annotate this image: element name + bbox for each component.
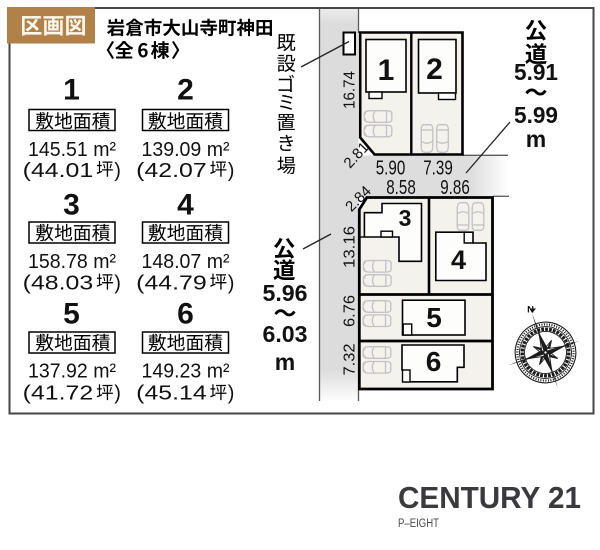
svg-text:(44.79: (44.79 <box>136 273 207 295</box>
svg-text:(44.01: (44.01 <box>23 160 94 182</box>
svg-text:8.58: 8.58 <box>386 177 416 199</box>
svg-text:): ) <box>228 273 235 295</box>
svg-text:): ) <box>114 273 121 295</box>
svg-text:(42.07: (42.07 <box>136 160 207 182</box>
svg-text:5.91: 5.91 <box>514 59 558 85</box>
svg-text:(41.72: (41.72 <box>23 383 94 405</box>
svg-text:1: 1 <box>63 74 80 107</box>
svg-text:158.78 m²: 158.78 m² <box>28 251 116 273</box>
svg-text:6.03: 6.03 <box>263 321 308 347</box>
svg-text:): ) <box>228 160 235 182</box>
svg-text:): ) <box>114 383 121 405</box>
svg-text:7.32: 7.32 <box>342 343 359 375</box>
svg-text:3: 3 <box>399 205 412 231</box>
svg-text:6: 6 <box>177 298 194 331</box>
svg-text:CENTURY 21: CENTURY 21 <box>398 480 581 515</box>
svg-text:): ) <box>114 160 121 182</box>
svg-text:5: 5 <box>63 298 80 331</box>
svg-text:6: 6 <box>426 346 442 377</box>
svg-text:5.99: 5.99 <box>514 102 558 128</box>
svg-text:2: 2 <box>177 74 194 107</box>
svg-text:9.86: 9.86 <box>440 177 470 199</box>
svg-text:(45.14: (45.14 <box>136 383 207 405</box>
svg-text:145.51 m²: 145.51 m² <box>28 139 116 161</box>
svg-text:148.07 m²: 148.07 m² <box>142 251 230 273</box>
svg-text:16.74: 16.74 <box>342 71 359 109</box>
svg-text:13.16: 13.16 <box>342 226 359 268</box>
svg-text:1: 1 <box>378 54 395 87</box>
svg-text:): ) <box>228 383 235 405</box>
svg-text:4: 4 <box>177 189 194 222</box>
svg-text:5: 5 <box>426 302 442 333</box>
svg-text:4: 4 <box>451 245 466 275</box>
svg-text:3: 3 <box>63 189 80 222</box>
svg-text:2: 2 <box>426 53 443 86</box>
svg-text:149.23 m²: 149.23 m² <box>142 361 230 383</box>
svg-text:(48.03: (48.03 <box>23 273 94 295</box>
svg-text:N: N <box>527 305 534 316</box>
svg-text:m: m <box>275 349 295 375</box>
svg-text:139.09 m²: 139.09 m² <box>142 139 230 161</box>
svg-text:P–EIGHT: P–EIGHT <box>398 518 439 530</box>
svg-text:m: m <box>526 126 546 152</box>
svg-text:5.96: 5.96 <box>263 280 308 306</box>
svg-text:6.76: 6.76 <box>342 295 359 327</box>
svg-text:137.92 m²: 137.92 m² <box>28 361 116 383</box>
